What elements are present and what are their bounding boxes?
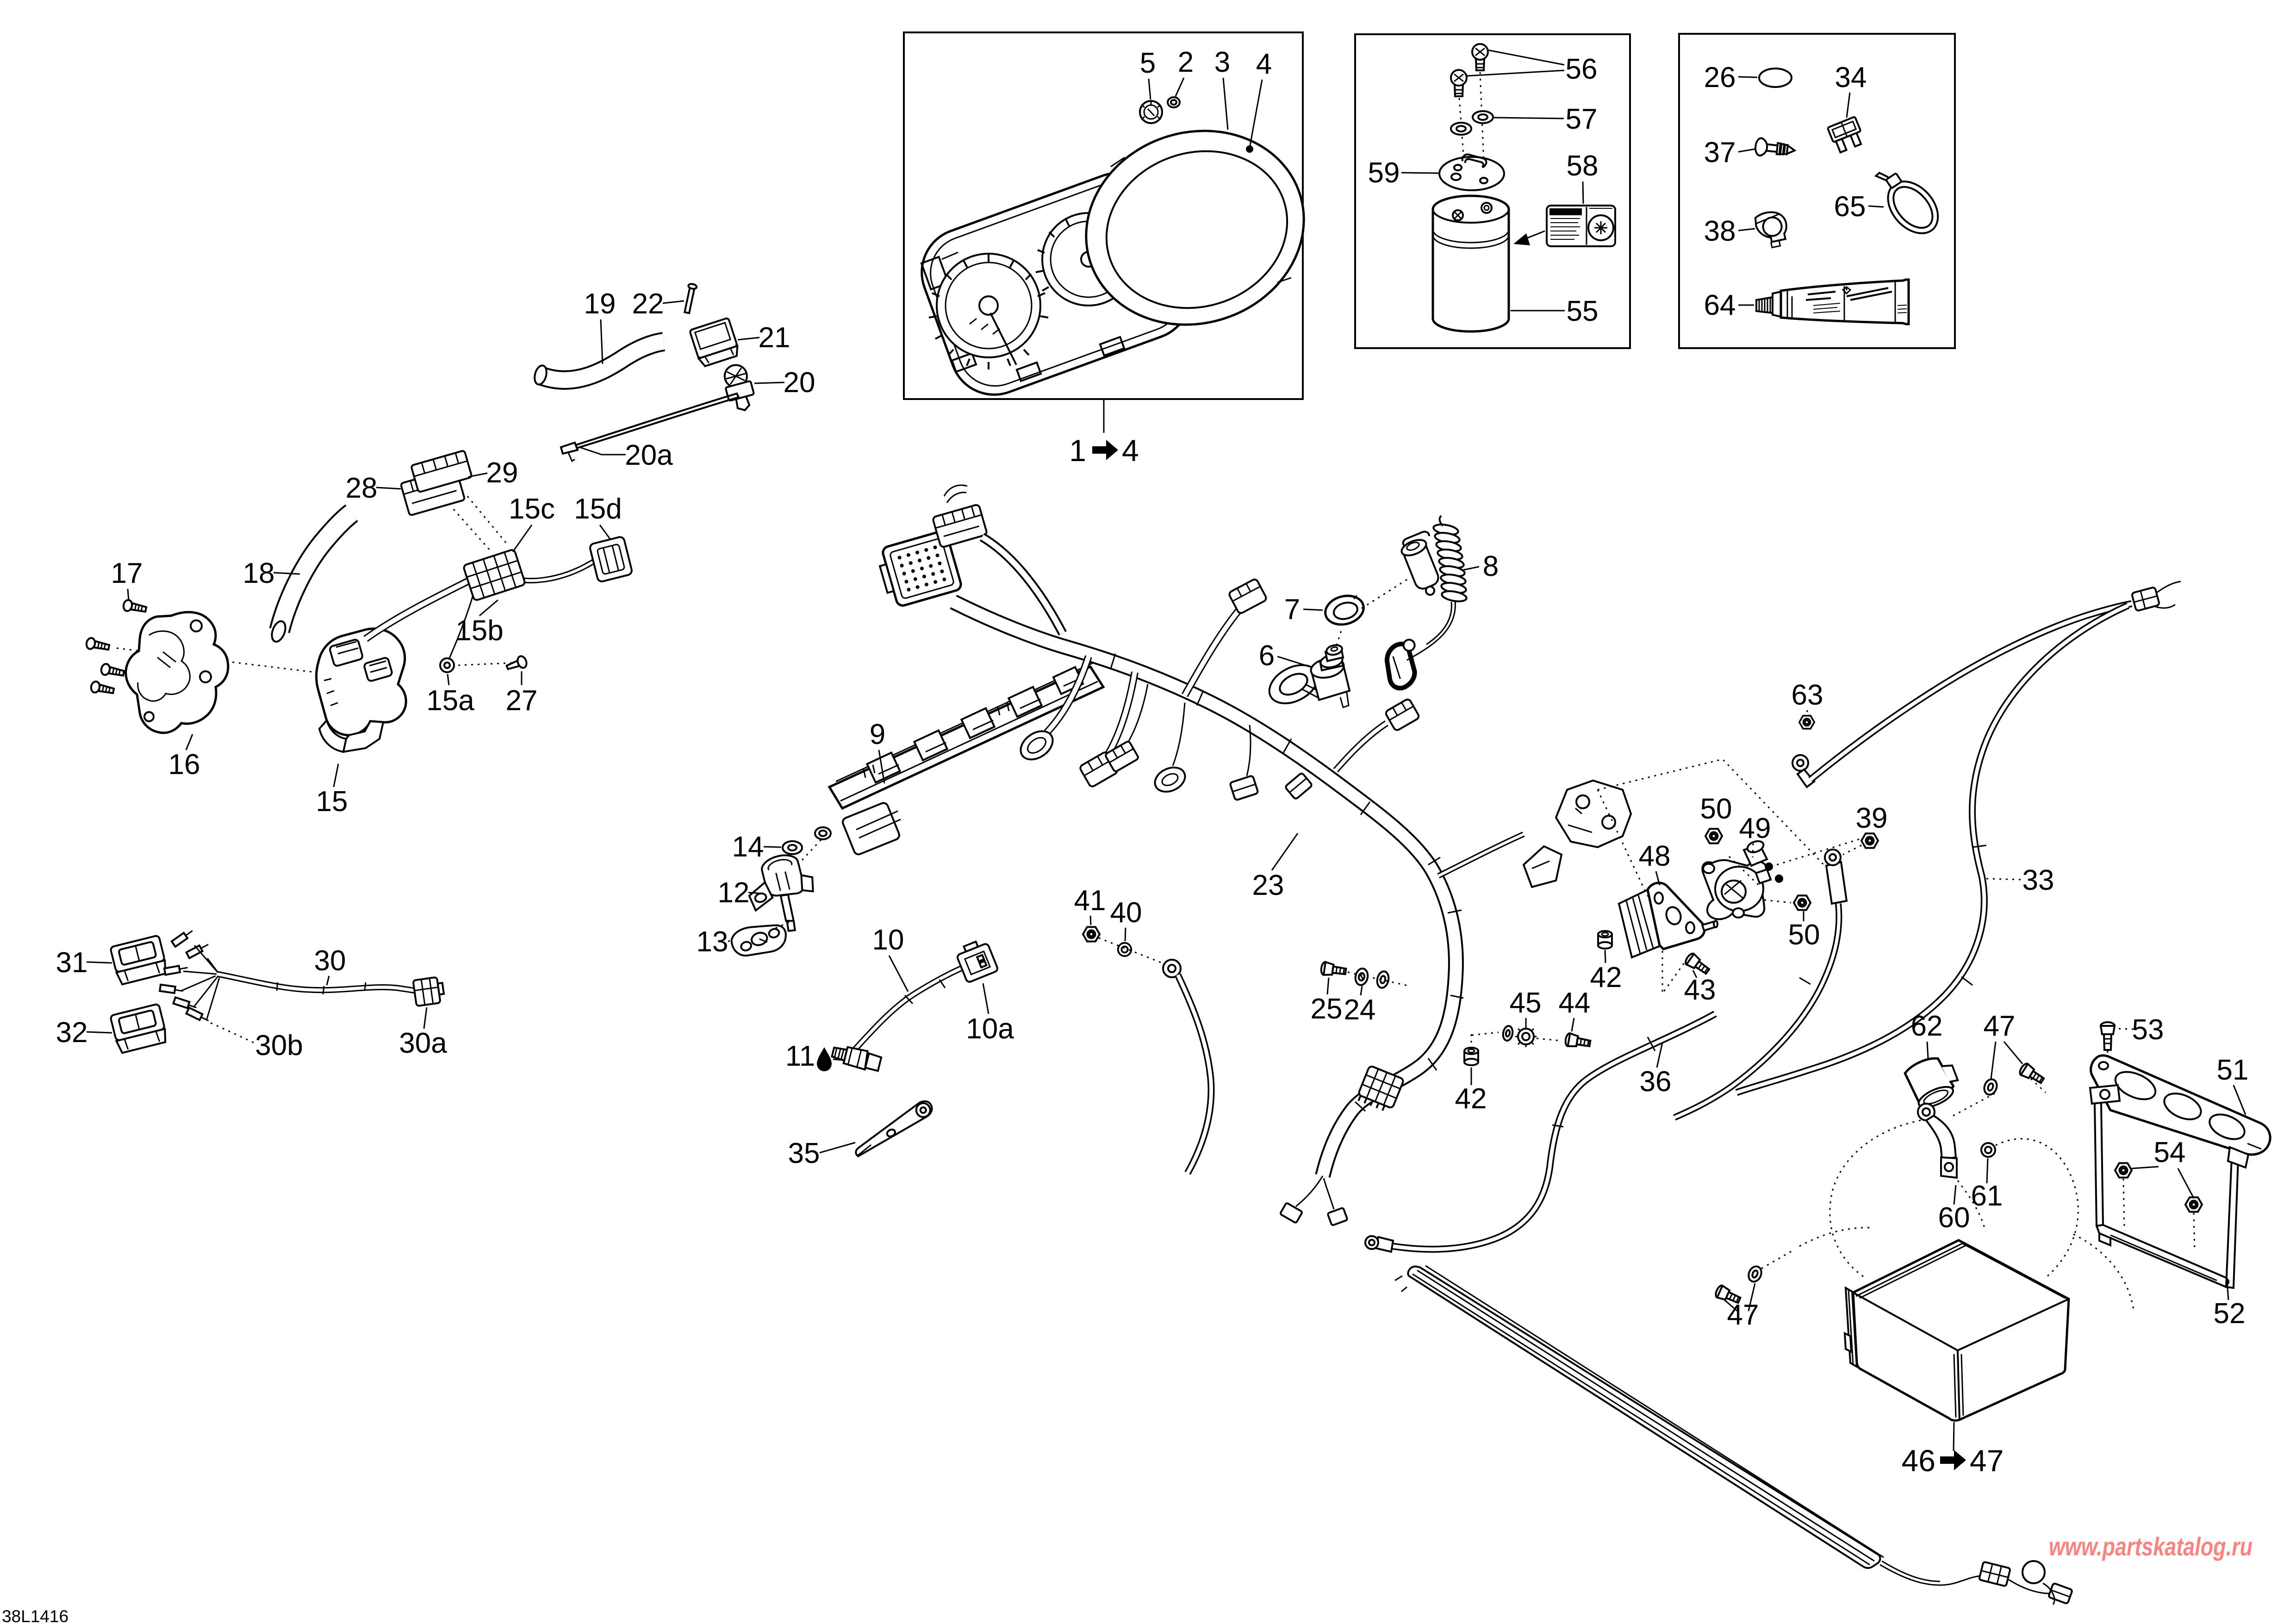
svg-text:59: 59 xyxy=(1368,157,1400,189)
svg-text:15d: 15d xyxy=(574,493,622,525)
svg-text:43: 43 xyxy=(1684,974,1716,1006)
svg-text:17: 17 xyxy=(111,557,143,589)
svg-text:27: 27 xyxy=(506,685,538,717)
svg-text:20a: 20a xyxy=(625,439,673,471)
svg-text:51: 51 xyxy=(2217,1054,2249,1086)
svg-text:57: 57 xyxy=(1566,103,1598,135)
svg-text:50: 50 xyxy=(1700,793,1732,825)
svg-text:14: 14 xyxy=(732,831,764,863)
svg-text:49: 49 xyxy=(1739,812,1771,844)
svg-text:38L1416: 38L1416 xyxy=(2,1607,68,1624)
svg-text:45: 45 xyxy=(1510,987,1542,1019)
svg-text:5: 5 xyxy=(1140,47,1156,79)
svg-text:2: 2 xyxy=(1178,46,1194,78)
svg-text:58: 58 xyxy=(1567,150,1599,182)
svg-text:61: 61 xyxy=(1971,1180,2003,1212)
svg-text:34: 34 xyxy=(1835,62,1867,94)
svg-text:55: 55 xyxy=(1567,295,1599,327)
svg-text:25: 25 xyxy=(1311,993,1343,1025)
svg-text:54: 54 xyxy=(2154,1137,2186,1168)
svg-text:26: 26 xyxy=(1704,62,1736,94)
svg-text:37: 37 xyxy=(1704,137,1736,169)
svg-text:47: 47 xyxy=(1727,1299,1759,1331)
svg-text:3: 3 xyxy=(1214,46,1230,78)
svg-text:24: 24 xyxy=(1344,994,1376,1026)
svg-text:29: 29 xyxy=(486,457,518,489)
svg-text:47: 47 xyxy=(1984,1010,2016,1042)
svg-text:15b: 15b xyxy=(455,615,503,647)
svg-text:46: 46 xyxy=(1902,1443,1935,1478)
svg-text:15a: 15a xyxy=(426,685,474,717)
svg-text:www.partskatalog.ru: www.partskatalog.ru xyxy=(2049,1532,2252,1561)
svg-text:50: 50 xyxy=(1788,919,1820,951)
svg-text:10a: 10a xyxy=(966,1013,1014,1045)
svg-text:30b: 30b xyxy=(255,1030,303,1062)
svg-text:40: 40 xyxy=(1110,897,1142,929)
svg-text:52: 52 xyxy=(2214,1298,2246,1330)
svg-text:47: 47 xyxy=(1970,1443,2004,1478)
svg-text:4: 4 xyxy=(1122,433,1139,468)
svg-text:20: 20 xyxy=(784,367,815,399)
svg-text:48: 48 xyxy=(1639,840,1671,872)
svg-text:9: 9 xyxy=(870,718,885,750)
svg-text:62: 62 xyxy=(1911,1010,1943,1042)
svg-text:33: 33 xyxy=(2022,864,2054,896)
svg-text:35: 35 xyxy=(788,1137,820,1169)
svg-text:36: 36 xyxy=(1640,1066,1672,1098)
svg-text:42: 42 xyxy=(1455,1083,1487,1115)
svg-text:19: 19 xyxy=(584,288,616,320)
svg-text:30: 30 xyxy=(314,945,346,977)
svg-text:4: 4 xyxy=(1256,48,1272,80)
svg-text:42: 42 xyxy=(1590,962,1622,993)
svg-text:31: 31 xyxy=(56,947,88,979)
svg-text:44: 44 xyxy=(1559,987,1591,1019)
svg-text:53: 53 xyxy=(2132,1014,2164,1046)
svg-text:28: 28 xyxy=(346,472,378,504)
svg-text:56: 56 xyxy=(1566,53,1598,85)
svg-text:65: 65 xyxy=(1834,191,1866,223)
svg-text:32: 32 xyxy=(56,1017,88,1049)
svg-text:63: 63 xyxy=(1792,679,1823,711)
svg-text:22: 22 xyxy=(632,288,664,320)
svg-text:38: 38 xyxy=(1704,215,1736,247)
svg-text:30a: 30a xyxy=(399,1027,447,1059)
svg-text:16: 16 xyxy=(168,749,200,781)
svg-text:60: 60 xyxy=(1938,1202,1970,1234)
svg-text:10: 10 xyxy=(872,924,904,956)
svg-text:41: 41 xyxy=(1074,885,1106,917)
svg-text:6: 6 xyxy=(1259,640,1275,672)
svg-text:15: 15 xyxy=(316,786,348,818)
svg-text:8: 8 xyxy=(1483,550,1499,582)
svg-text:11: 11 xyxy=(785,1040,815,1072)
svg-text:12: 12 xyxy=(718,877,750,909)
svg-text:21: 21 xyxy=(759,322,790,354)
svg-text:18: 18 xyxy=(243,557,275,589)
svg-text:23: 23 xyxy=(1252,869,1284,901)
svg-text:13: 13 xyxy=(697,926,728,958)
svg-text:7: 7 xyxy=(1284,593,1300,625)
svg-text:39: 39 xyxy=(1856,802,1888,834)
svg-text:64: 64 xyxy=(1704,289,1736,321)
svg-text:15c: 15c xyxy=(509,493,555,525)
svg-text:1: 1 xyxy=(1069,433,1086,468)
